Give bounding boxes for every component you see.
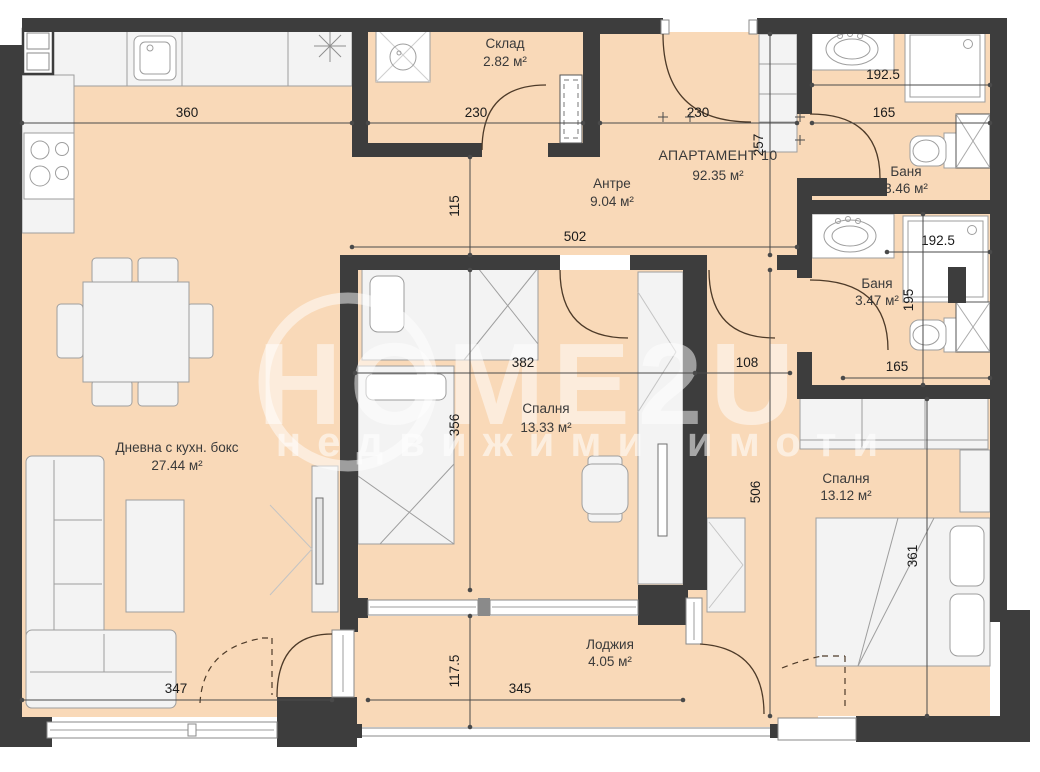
bath1-toilet xyxy=(910,133,956,168)
armchair xyxy=(582,456,628,522)
floor-plan: HOME2U недвижими имоти 360 230 230 165 1… xyxy=(0,0,1040,772)
svg-text:506: 506 xyxy=(748,481,763,504)
svg-text:115: 115 xyxy=(447,195,462,217)
room-area-bath1: 3.46 м² xyxy=(884,181,928,196)
room-area-living: 27.44 м² xyxy=(151,458,203,473)
room-label-living: Дневна с кухн. бокс xyxy=(115,440,238,455)
svg-text:347: 347 xyxy=(165,681,188,696)
storage-door-leaf xyxy=(560,75,582,143)
bedroom2-terrace-door-frame xyxy=(778,718,856,740)
room-label-bedroom1: Спалня xyxy=(522,401,569,416)
svg-text:345: 345 xyxy=(509,681,532,696)
kitchen-sink xyxy=(134,36,176,80)
watermark-tagline: недвижими имоти xyxy=(276,418,895,465)
svg-text:195: 195 xyxy=(901,289,916,312)
washing-machine xyxy=(376,28,430,82)
svg-text:165: 165 xyxy=(886,359,909,374)
svg-text:192.5: 192.5 xyxy=(921,233,955,248)
balcony-door-frame xyxy=(332,630,354,697)
room-area-entry: 9.04 м² xyxy=(590,194,634,209)
room-area-loggia: 4.05 м² xyxy=(588,654,632,669)
stove xyxy=(24,133,74,199)
apartment-title: АПАРТАМЕНТ 10 xyxy=(658,147,777,163)
svg-text:192.5: 192.5 xyxy=(866,67,900,82)
svg-text:361: 361 xyxy=(905,545,920,568)
bath1-vanity xyxy=(812,28,894,70)
bedroom2-bed xyxy=(816,518,990,666)
room-area-bath2: 3.47 м² xyxy=(855,293,899,308)
svg-text:382: 382 xyxy=(512,355,535,370)
bath2-duct xyxy=(956,302,990,352)
room-label-bath2: Баня xyxy=(861,276,892,291)
room-label-bath1: Баня xyxy=(890,164,921,179)
room-label-bedroom2: Спалня xyxy=(822,471,869,486)
living-window xyxy=(47,722,277,738)
watermark: HOME2U недвижими имоти xyxy=(258,298,894,466)
bedroom2-side-wardrobe xyxy=(707,518,745,612)
svg-text:360: 360 xyxy=(176,105,199,120)
room-label-loggia: Лоджия xyxy=(586,637,634,652)
room-label-storage: Склад xyxy=(485,36,524,51)
entry-door-frame-right xyxy=(749,20,757,34)
entry-door-frame-left xyxy=(661,20,669,34)
coffee-table xyxy=(126,500,184,612)
bedroom2-shelf xyxy=(960,450,990,512)
svg-text:230: 230 xyxy=(465,105,488,120)
bath1-duct xyxy=(956,114,990,168)
room-label-entry: Антре xyxy=(593,176,631,191)
room-area-storage: 2.82 м² xyxy=(483,54,527,69)
apartment-area: 92.35 м² xyxy=(692,168,744,183)
room-area-bedroom2: 13.12 м² xyxy=(820,488,872,503)
vent-shaft xyxy=(23,29,53,74)
svg-text:108: 108 xyxy=(736,355,759,370)
room-area-bedroom1: 13.33 м² xyxy=(520,420,572,435)
bath2-vanity xyxy=(812,214,894,258)
svg-text:502: 502 xyxy=(564,229,587,244)
loggia-windows xyxy=(368,598,638,616)
terrace-door-frame xyxy=(686,598,702,644)
bath2-toilet xyxy=(910,318,956,352)
svg-text:165: 165 xyxy=(873,105,896,120)
svg-text:356: 356 xyxy=(447,414,462,437)
bath1-shower xyxy=(905,30,985,102)
svg-text:117.5: 117.5 xyxy=(447,655,462,688)
